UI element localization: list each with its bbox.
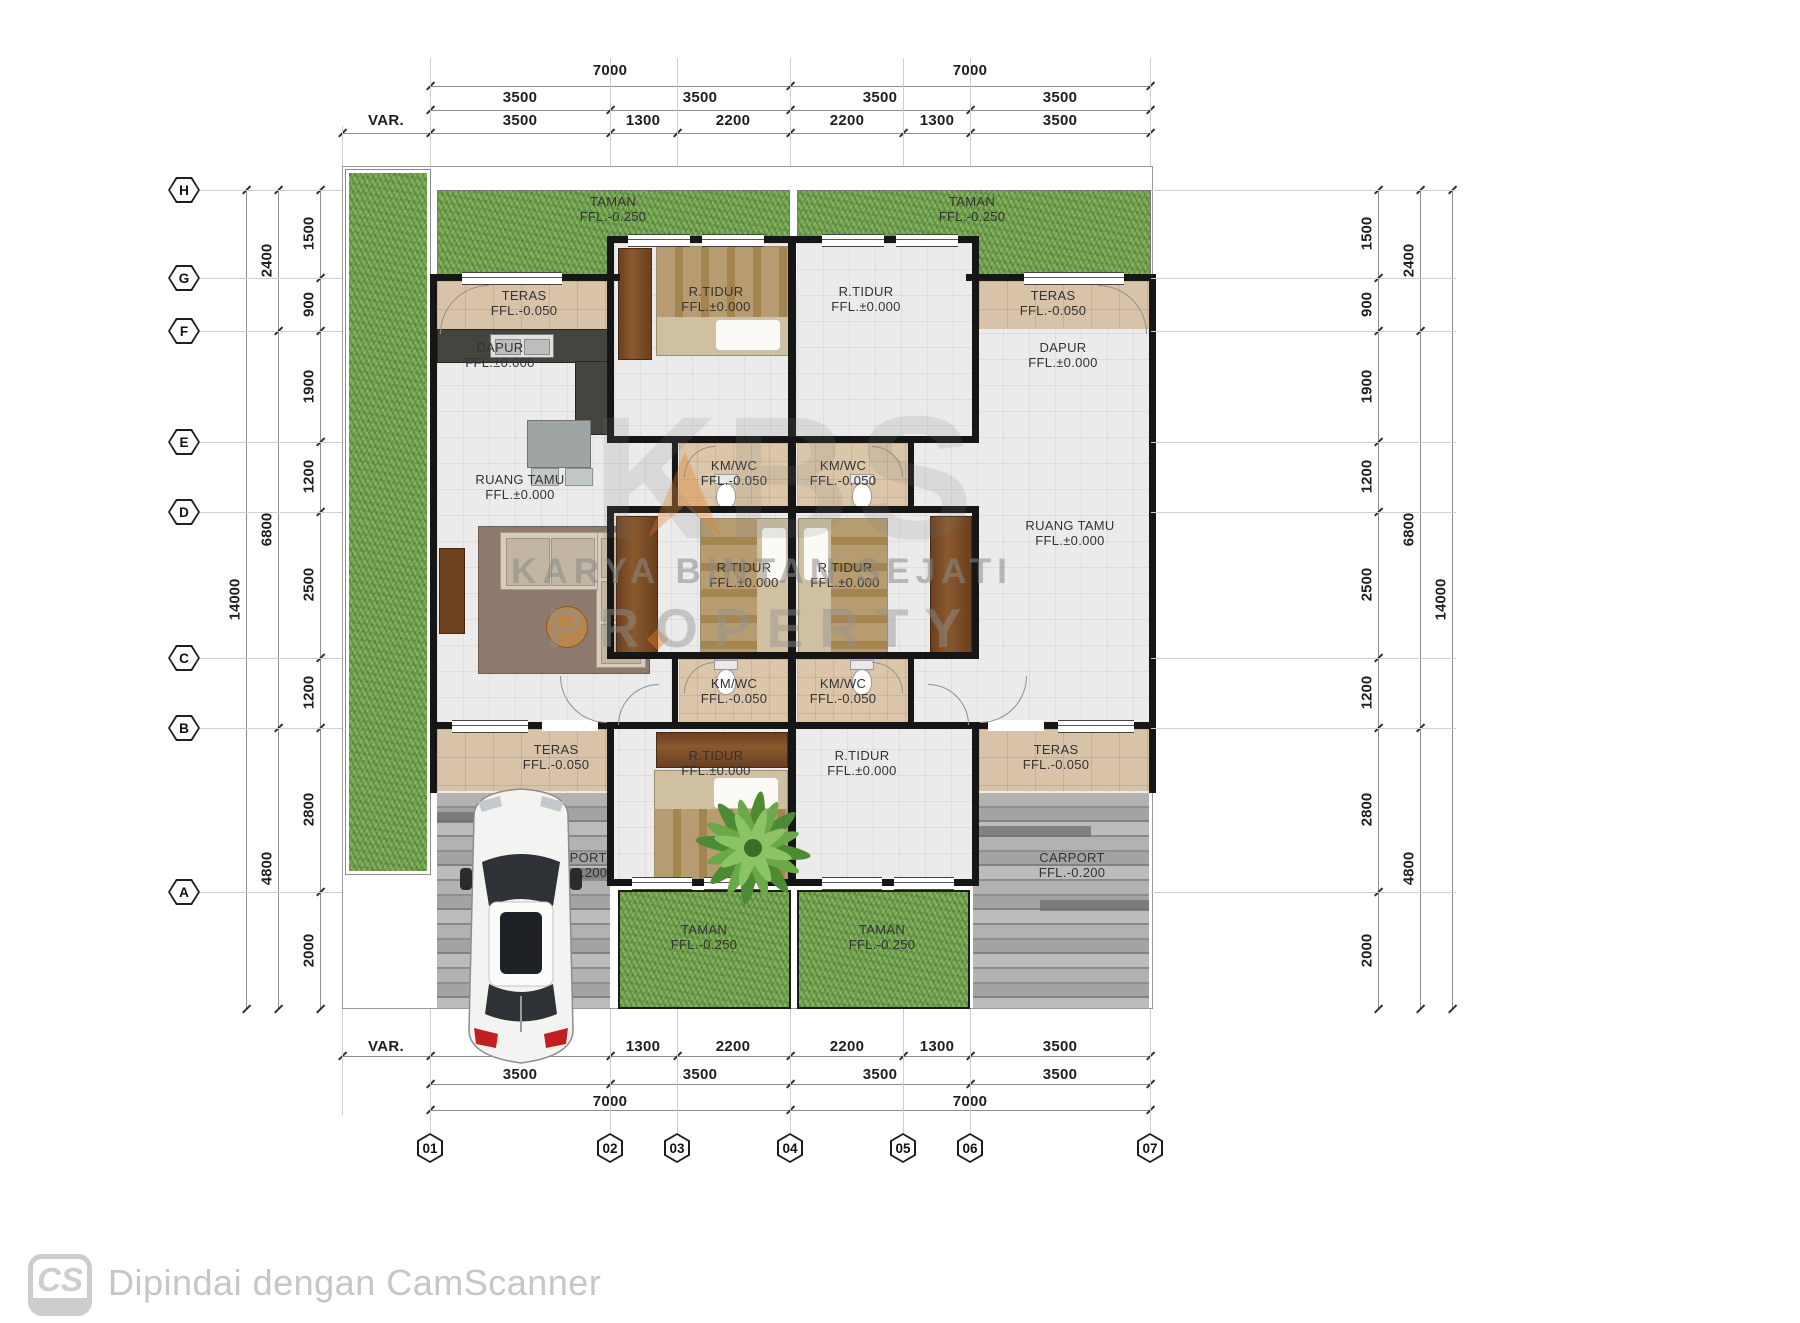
extension-line — [1151, 442, 1456, 443]
extension-line — [1151, 190, 1456, 191]
window — [452, 720, 528, 733]
grid-col-bubble-04: 04 — [777, 1133, 803, 1163]
window — [628, 234, 690, 247]
window — [1024, 272, 1124, 285]
camscanner-logo-bar — [33, 1298, 87, 1311]
dimension-text: 1300 — [899, 112, 975, 129]
room-label-kmwc-lower-right: KM/WCFFL.-0.050 — [810, 676, 877, 706]
dimension-line — [320, 190, 321, 1009]
wall — [908, 658, 914, 728]
extension-line — [610, 58, 611, 166]
wall — [607, 236, 614, 442]
window — [702, 234, 764, 247]
camscanner-logo: CS — [28, 1254, 92, 1316]
dimension-text: 3500 — [842, 1066, 918, 1083]
room-label-taman-top-right: TAMANFFL.-0.250 — [939, 194, 1006, 224]
grid-row-bubble-D: D — [168, 499, 200, 525]
dimension-text: VAR. — [348, 1038, 424, 1055]
room-label-carport-right: CARPORTFFL.-0.200 — [1039, 850, 1106, 880]
dimension-tick — [1416, 1004, 1425, 1013]
camscanner-footer-text: Dipindai dengan CamScanner — [108, 1262, 601, 1304]
wall — [972, 236, 979, 442]
dimension-text: 2000 — [301, 913, 318, 989]
dimension-text: 3500 — [482, 89, 558, 106]
extension-line — [790, 1009, 791, 1115]
grid-row-bubble-E: E — [168, 429, 200, 455]
dimension-tick — [274, 1004, 283, 1013]
wall — [1149, 274, 1156, 793]
wall — [793, 506, 979, 513]
door-opening — [988, 720, 1044, 731]
sofa-chaise — [500, 532, 598, 590]
dimension-text: 3500 — [1022, 1066, 1098, 1083]
window — [462, 272, 562, 285]
extension-line — [200, 278, 342, 279]
carport-plank — [1040, 900, 1149, 911]
tv-console — [439, 548, 465, 634]
room-label-rtidur-mid-left: R.TIDURFFL.±0.000 — [709, 560, 778, 590]
wardrobe — [618, 248, 652, 360]
dimension-line — [246, 190, 247, 1009]
grid-row-bubble-A: A — [168, 879, 200, 905]
window — [1058, 720, 1134, 733]
wall — [972, 728, 979, 886]
coffee-table — [546, 606, 588, 648]
room-label-taman-bottom-left: TAMANFFL.-0.250 — [671, 922, 738, 952]
wall — [430, 274, 437, 793]
dimension-tick — [1374, 1004, 1383, 1013]
room-label-dapur-right: DAPURFFL.±0.000 — [1028, 340, 1097, 370]
wall — [793, 652, 979, 659]
room-label-taman-top-left: TAMANFFL.-0.250 — [580, 194, 647, 224]
room-label-taman-bottom-right: TAMANFFL.-0.250 — [849, 922, 916, 952]
dimension-text: 2400 — [1401, 223, 1418, 299]
dimension-text: 14000 — [1433, 562, 1450, 638]
dimension-line — [278, 190, 279, 1009]
dimension-text: 2200 — [695, 112, 771, 129]
extension-line — [200, 892, 342, 893]
window — [896, 234, 958, 247]
grid-row-bubble-C: C — [168, 645, 200, 671]
grid-col-bubble-05: 05 — [890, 1133, 916, 1163]
dimension-text: 4800 — [1401, 831, 1418, 907]
dimension-tick — [242, 1004, 251, 1013]
plant — [680, 772, 826, 922]
extension-line — [903, 1009, 904, 1115]
dimension-text: 3500 — [1022, 112, 1098, 129]
dimension-text: 2000 — [1359, 913, 1376, 989]
extension-line — [1150, 1009, 1151, 1115]
wall — [607, 512, 614, 658]
dimension-text: 6800 — [259, 492, 276, 568]
wall — [672, 442, 678, 512]
dimension-text: 3500 — [842, 89, 918, 106]
room-label-teras-top-right: TERASFFL.-0.050 — [1020, 288, 1087, 318]
extension-line — [200, 512, 342, 513]
grid-col-bubble-03: 03 — [664, 1133, 690, 1163]
wardrobe — [930, 516, 972, 656]
dimension-line — [1452, 190, 1453, 1009]
extension-line — [1151, 658, 1456, 659]
dimension-line — [1420, 190, 1421, 1009]
wall — [672, 658, 678, 728]
dimension-text: 3500 — [1022, 89, 1098, 106]
sofa-cushion — [506, 538, 550, 586]
extension-line — [903, 1115, 904, 1133]
dimension-text: 1900 — [1359, 349, 1376, 425]
extension-line — [342, 126, 343, 166]
extension-line — [1151, 512, 1456, 513]
extension-line — [610, 1009, 611, 1115]
extension-line — [677, 1115, 678, 1133]
dimension-text: 6800 — [1401, 492, 1418, 568]
dimension-text: 3500 — [662, 1066, 738, 1083]
dimension-text: 1200 — [1359, 439, 1376, 515]
extension-line — [1151, 892, 1456, 893]
bedroom-top-right-floor — [797, 243, 972, 436]
dimension-text: 1900 — [301, 349, 318, 425]
dimension-text: 2200 — [809, 112, 885, 129]
room-label-teras-top-left: TERASFFL.-0.050 — [491, 288, 558, 318]
grid-row-bubble-H: H — [168, 177, 200, 203]
extension-line — [342, 1009, 343, 1115]
dimension-text: 2400 — [259, 223, 276, 299]
camscanner-logo-text: CS — [33, 1261, 87, 1299]
extension-line — [430, 58, 431, 166]
car-top-view — [452, 782, 590, 1070]
extension-line — [1150, 58, 1151, 166]
extension-line — [200, 190, 342, 191]
extension-line — [200, 728, 342, 729]
grid-col-bubble-02: 02 — [597, 1133, 623, 1163]
dimension-text: 1200 — [1359, 655, 1376, 731]
room-label-rtidur-bottom-right: R.TIDURFFL.±0.000 — [827, 748, 896, 778]
room-label-kmwc-lower-left: KM/WCFFL.-0.050 — [701, 676, 768, 706]
window — [894, 877, 954, 890]
extension-line — [677, 1009, 678, 1115]
grid-col-bubble-07: 07 — [1137, 1133, 1163, 1163]
dimension-text: 2200 — [695, 1038, 771, 1055]
side-garden-strip — [345, 169, 431, 875]
extension-line — [610, 1115, 611, 1133]
dimension-text: 2800 — [301, 772, 318, 848]
extension-line — [790, 1115, 791, 1133]
wardrobe — [616, 516, 658, 656]
room-label-kmwc-upper-right: KM/WCFFL.-0.050 — [810, 458, 877, 488]
door-opening — [542, 720, 598, 731]
bed-pillow — [715, 319, 781, 351]
extension-line — [200, 442, 342, 443]
dimension-text: 1500 — [301, 196, 318, 272]
wall — [607, 506, 793, 513]
dimension-text: 2500 — [301, 547, 318, 623]
dimension-tick — [1448, 1004, 1457, 1013]
dimension-text: 4800 — [259, 831, 276, 907]
dimension-text: 14000 — [227, 562, 244, 638]
extension-line — [1151, 728, 1456, 729]
dimension-text: 1300 — [605, 1038, 681, 1055]
sofa-cushion — [551, 538, 595, 586]
dimension-text: 1200 — [301, 655, 318, 731]
wall — [607, 436, 793, 443]
extension-line — [430, 1115, 431, 1133]
wall — [607, 652, 793, 659]
room-label-teras-bottom-right: TERASFFL.-0.050 — [1023, 742, 1090, 772]
dimension-text: 3500 — [482, 112, 558, 129]
extension-line — [677, 58, 678, 166]
floorplan-page: TAMANFFL.-0.250TAMANFFL.-0.250TERASFFL.-… — [0, 0, 1800, 1323]
kitchen-chair — [565, 468, 593, 486]
extension-line — [1150, 1115, 1151, 1133]
window — [822, 234, 884, 247]
wall — [607, 728, 614, 886]
kitchen-table — [527, 420, 591, 468]
dimension-text: 2500 — [1359, 547, 1376, 623]
dimension-text: 1200 — [301, 439, 318, 515]
extension-line — [200, 331, 342, 332]
carport-plank — [973, 826, 1091, 837]
dimension-text: 3500 — [662, 89, 738, 106]
dimension-line — [1378, 190, 1379, 1009]
dimension-text: 3500 — [1022, 1038, 1098, 1055]
room-label-teras-bottom-left: TERASFFL.-0.050 — [523, 742, 590, 772]
dimension-text: 2800 — [1359, 772, 1376, 848]
extension-line — [970, 1115, 971, 1133]
wall — [793, 436, 979, 443]
room-label-dapur-left: DAPURFFL.±0.000 — [465, 340, 534, 370]
grid-row-bubble-F: F — [168, 318, 200, 344]
grid-row-bubble-B: B — [168, 715, 200, 741]
extension-line — [200, 658, 342, 659]
grid-col-bubble-06: 06 — [957, 1133, 983, 1163]
room-label-rtidur-top-left: R.TIDURFFL.±0.000 — [681, 284, 750, 314]
extension-line — [1151, 331, 1456, 332]
extension-line — [430, 1009, 431, 1115]
grid-row-bubble-G: G — [168, 265, 200, 291]
dimension-text: 2200 — [809, 1038, 885, 1055]
dimension-text: 1300 — [605, 112, 681, 129]
dimension-tick — [316, 1004, 325, 1013]
room-label-kmwc-upper-left: KM/WCFFL.-0.050 — [701, 458, 768, 488]
wall — [972, 512, 979, 658]
extension-line — [1151, 278, 1456, 279]
dimension-text: 1300 — [899, 1038, 975, 1055]
room-label-rtidur-mid-right: R.TIDURFFL.±0.000 — [810, 560, 879, 590]
extension-line — [790, 58, 791, 166]
room-label-ruang-tamu-right: RUANG TAMUFFL.±0.000 — [1025, 518, 1114, 548]
extension-line — [970, 1009, 971, 1115]
dimension-text: VAR. — [348, 112, 424, 129]
extension-line — [970, 58, 971, 166]
window — [822, 877, 882, 890]
grid-col-bubble-01: 01 — [417, 1133, 443, 1163]
dimension-text: 1500 — [1359, 196, 1376, 272]
wall — [908, 442, 914, 512]
extension-line — [903, 58, 904, 166]
room-label-rtidur-top-right: R.TIDURFFL.±0.000 — [831, 284, 900, 314]
dimension-line — [342, 133, 1150, 134]
room-label-ruang-tamu-left: RUANG TAMUFFL.±0.000 — [475, 472, 564, 502]
